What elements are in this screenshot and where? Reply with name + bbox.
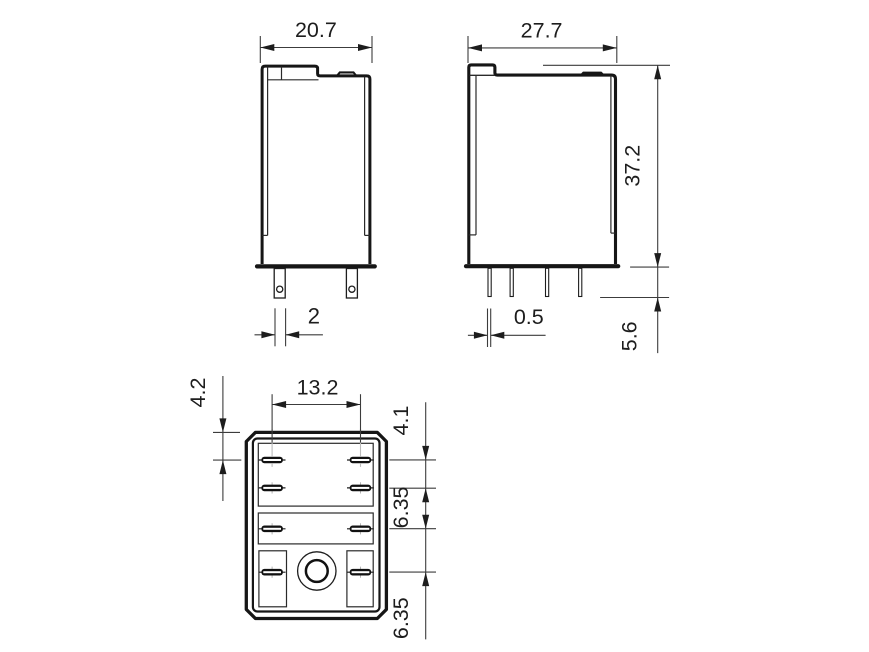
svg-text:37.2: 37.2 [620,145,644,187]
svg-text:2: 2 [308,304,320,329]
svg-text:6.35: 6.35 [389,597,413,639]
svg-text:13.2: 13.2 [297,376,339,400]
svg-text:0.5: 0.5 [514,305,544,329]
svg-text:4.2: 4.2 [186,378,210,408]
svg-text:4.1: 4.1 [389,406,413,436]
svg-text:27.7: 27.7 [521,19,563,43]
svg-text:20.7: 20.7 [295,18,337,42]
svg-text:5.6: 5.6 [618,321,642,351]
svg-text:6.35: 6.35 [389,486,413,528]
